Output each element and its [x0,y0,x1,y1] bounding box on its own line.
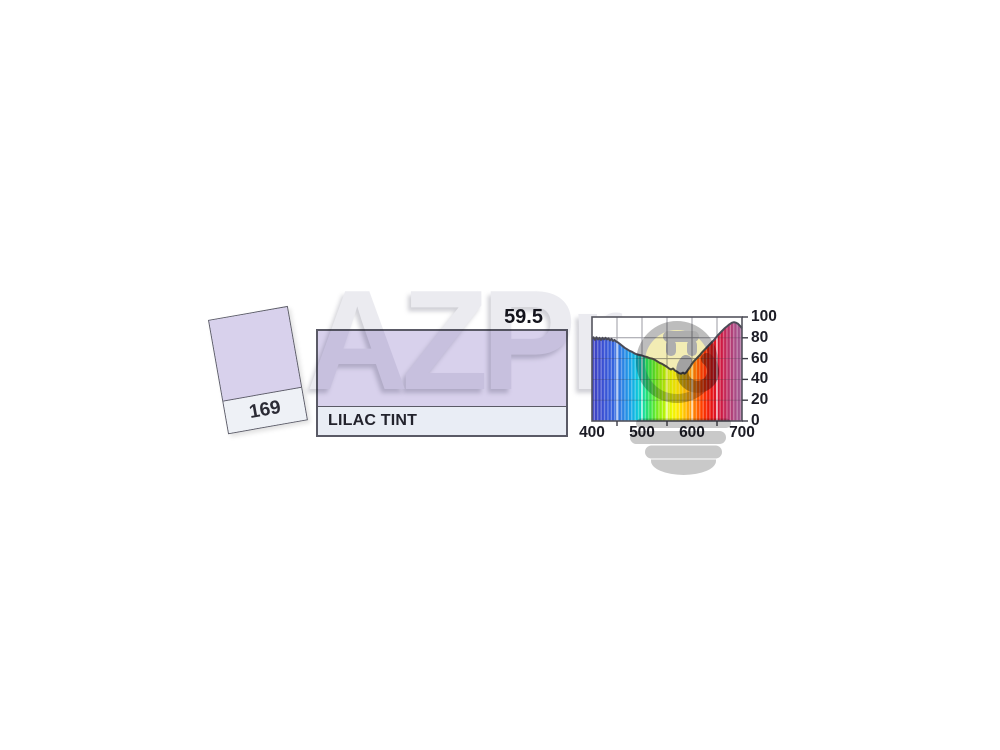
bulb-base-cap [651,460,716,476]
spectral-chart: 400500600700020406080100 [561,295,801,450]
filter-color-area [318,331,566,407]
y-axis-label: 0 [751,413,791,429]
x-axis-label: 500 [624,424,660,442]
swatch-color-area [209,307,301,401]
filter-name-strip: LILAC TINT [318,407,566,435]
swatch-number: 169 [248,397,283,424]
y-axis-label: 40 [751,371,791,387]
gel-swatch-card: 169 [208,306,308,434]
product-image: 169 AZPr 59.5 LILAC TINT 400500600700020… [0,0,1000,750]
y-axis-label: 60 [751,351,791,367]
y-axis-label: 80 [751,330,791,346]
y-axis-label: 20 [751,392,791,408]
filter-name: LILAC TINT [328,412,417,430]
filter-strip: LILAC TINT [316,329,568,437]
x-axis-label: 600 [674,424,710,442]
y-axis-label: 100 [751,309,791,325]
x-axis-label: 400 [574,424,610,442]
transmission-value: 59.5 [316,306,543,329]
